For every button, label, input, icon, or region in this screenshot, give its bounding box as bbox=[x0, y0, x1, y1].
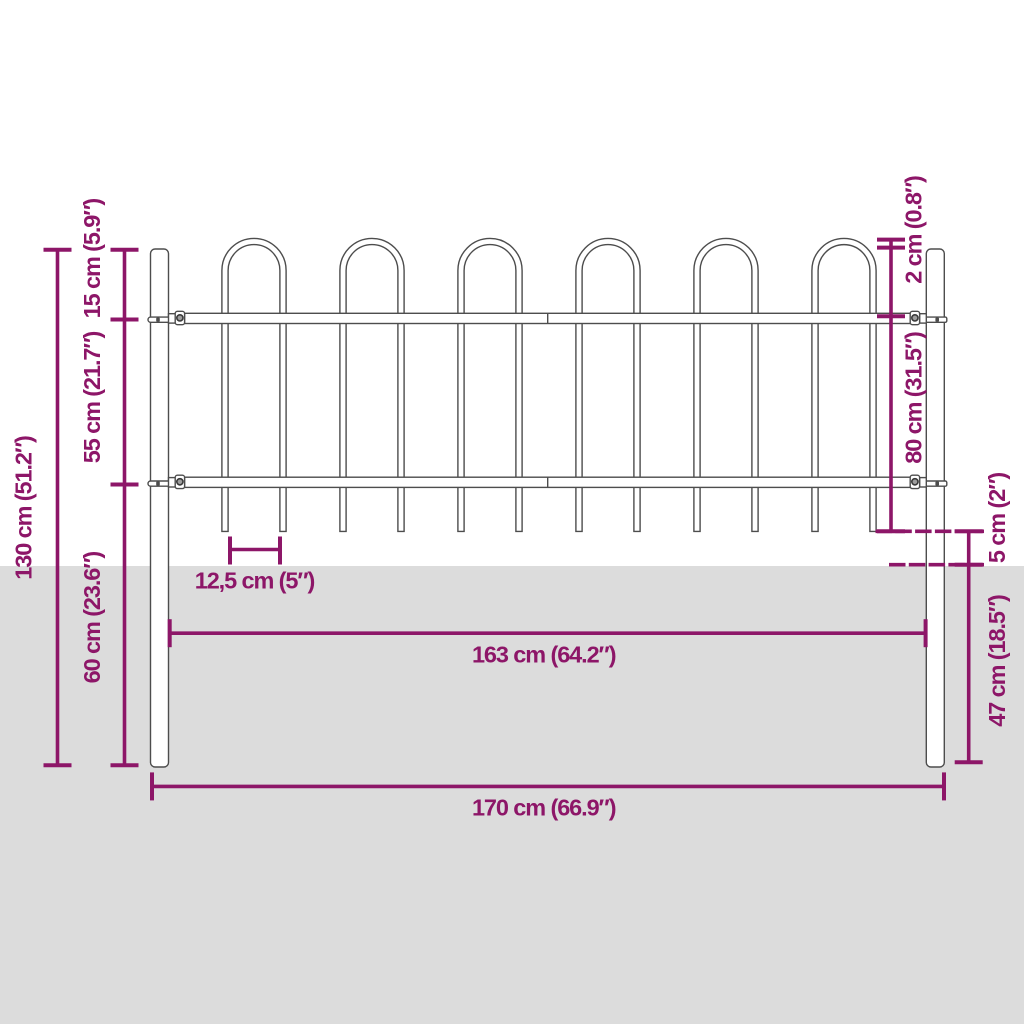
svg-text:15 cm (5.9″): 15 cm (5.9″) bbox=[79, 199, 105, 319]
svg-text:2 cm (0.8″): 2 cm (0.8″) bbox=[901, 176, 927, 284]
svg-text:130 cm (51.2″): 130 cm (51.2″) bbox=[11, 436, 37, 580]
svg-text:55 cm (21.7″): 55 cm (21.7″) bbox=[79, 331, 105, 463]
svg-text:5 cm (2″): 5 cm (2″) bbox=[984, 473, 1010, 563]
svg-text:12,5 cm (5″): 12,5 cm (5″) bbox=[195, 568, 315, 594]
svg-text:163 cm (64.2″): 163 cm (64.2″) bbox=[472, 642, 616, 668]
svg-text:80 cm (31.5″): 80 cm (31.5″) bbox=[901, 332, 927, 464]
svg-text:60 cm (23.6″): 60 cm (23.6″) bbox=[79, 552, 105, 684]
svg-text:170 cm (66.9″): 170 cm (66.9″) bbox=[472, 795, 616, 821]
svg-text:47 cm (18.5″): 47 cm (18.5″) bbox=[984, 595, 1010, 727]
